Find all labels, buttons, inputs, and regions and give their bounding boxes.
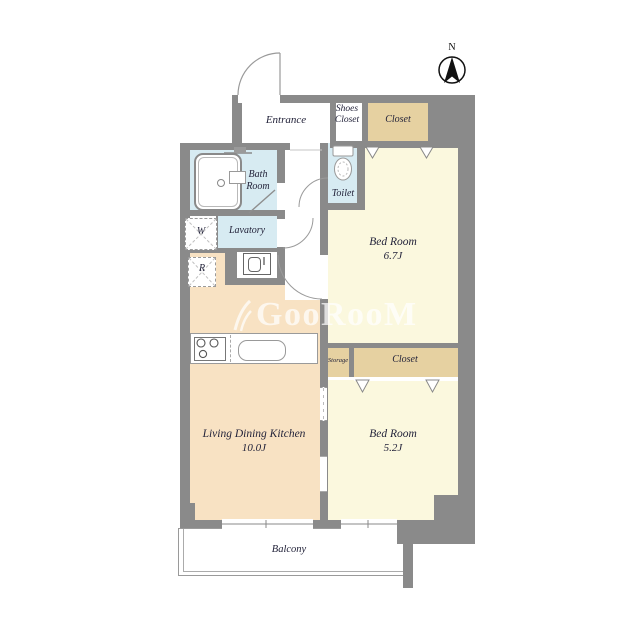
stove-icon	[194, 337, 226, 361]
watermark-text: GooRooM	[256, 298, 418, 332]
bath-label-1: Bath	[249, 170, 268, 181]
wall-closet-bottom	[330, 141, 458, 148]
ldk-label: Living Dining Kitchen	[203, 428, 306, 440]
closet2-door-track	[354, 377, 458, 381]
ldk-size: 10.0J	[242, 443, 266, 455]
counter-divider	[230, 335, 231, 362]
balcony-window	[222, 519, 313, 529]
kitchen-counter	[190, 333, 318, 364]
balcony-label: Balcony	[272, 544, 306, 555]
watermark: GooRooM	[232, 298, 418, 332]
bedroom1-label: Bed Room	[369, 236, 417, 248]
bedroom2-window	[341, 519, 397, 529]
wall-bedroom2-notch	[434, 495, 458, 520]
toilet-label: Toilet	[332, 189, 354, 200]
sliding-door-opening	[320, 456, 327, 492]
wall-ldk-notch	[180, 503, 195, 528]
wall-partition-upper	[320, 143, 328, 255]
wall-toilet-bottom	[320, 203, 365, 210]
wall-left	[180, 143, 190, 528]
wall-storage-closet-divider	[349, 347, 354, 377]
closet-top-label: Closet	[385, 115, 411, 126]
sliding-door-dashed	[320, 387, 327, 421]
leaf-logo-icon	[232, 298, 252, 332]
shoes-closet-label-1: Shoes	[336, 105, 358, 115]
refrigerator-label: R	[199, 264, 205, 275]
bedroom1-size: 6.7J	[384, 251, 403, 263]
closet2-label: Closet	[392, 355, 418, 366]
wall-top-right-block	[428, 103, 458, 143]
wall-right	[458, 95, 475, 528]
north-label: N	[448, 42, 455, 53]
wall-bath-top	[180, 143, 290, 150]
bath-label-2: Room	[246, 182, 269, 193]
wall-partition-storage	[320, 345, 328, 387]
wall-closet-row-top	[320, 343, 458, 348]
storage-label: Storage	[328, 358, 348, 365]
wall-entrance-left	[232, 95, 242, 150]
entry-door-opening	[238, 95, 280, 103]
entrance-label: Entrance	[266, 115, 306, 127]
north-compass-icon	[439, 57, 465, 83]
balcony-pillar	[403, 520, 413, 588]
kitchen-sink	[238, 340, 286, 361]
washbasin	[243, 253, 271, 275]
entry-door-arc	[238, 53, 280, 95]
wall-corridor-left-1	[277, 143, 285, 183]
shoes-closet-label-2: Closet	[335, 116, 359, 126]
bedroom2-size: 5.2J	[384, 443, 403, 455]
wall-corridor-left-3	[277, 247, 285, 285]
washbasin-bowl	[248, 257, 261, 272]
wall-basin-bottom	[225, 278, 277, 285]
washer-label: W	[197, 227, 205, 238]
wall-toilet-right	[357, 143, 365, 210]
floor-plan: GooRooM Entrance Shoes Closet Closet Bat…	[0, 0, 640, 640]
bath-control-box	[229, 171, 246, 184]
bedroom2-label: Bed Room	[369, 428, 417, 440]
lavatory-label: Lavatory	[229, 226, 265, 237]
